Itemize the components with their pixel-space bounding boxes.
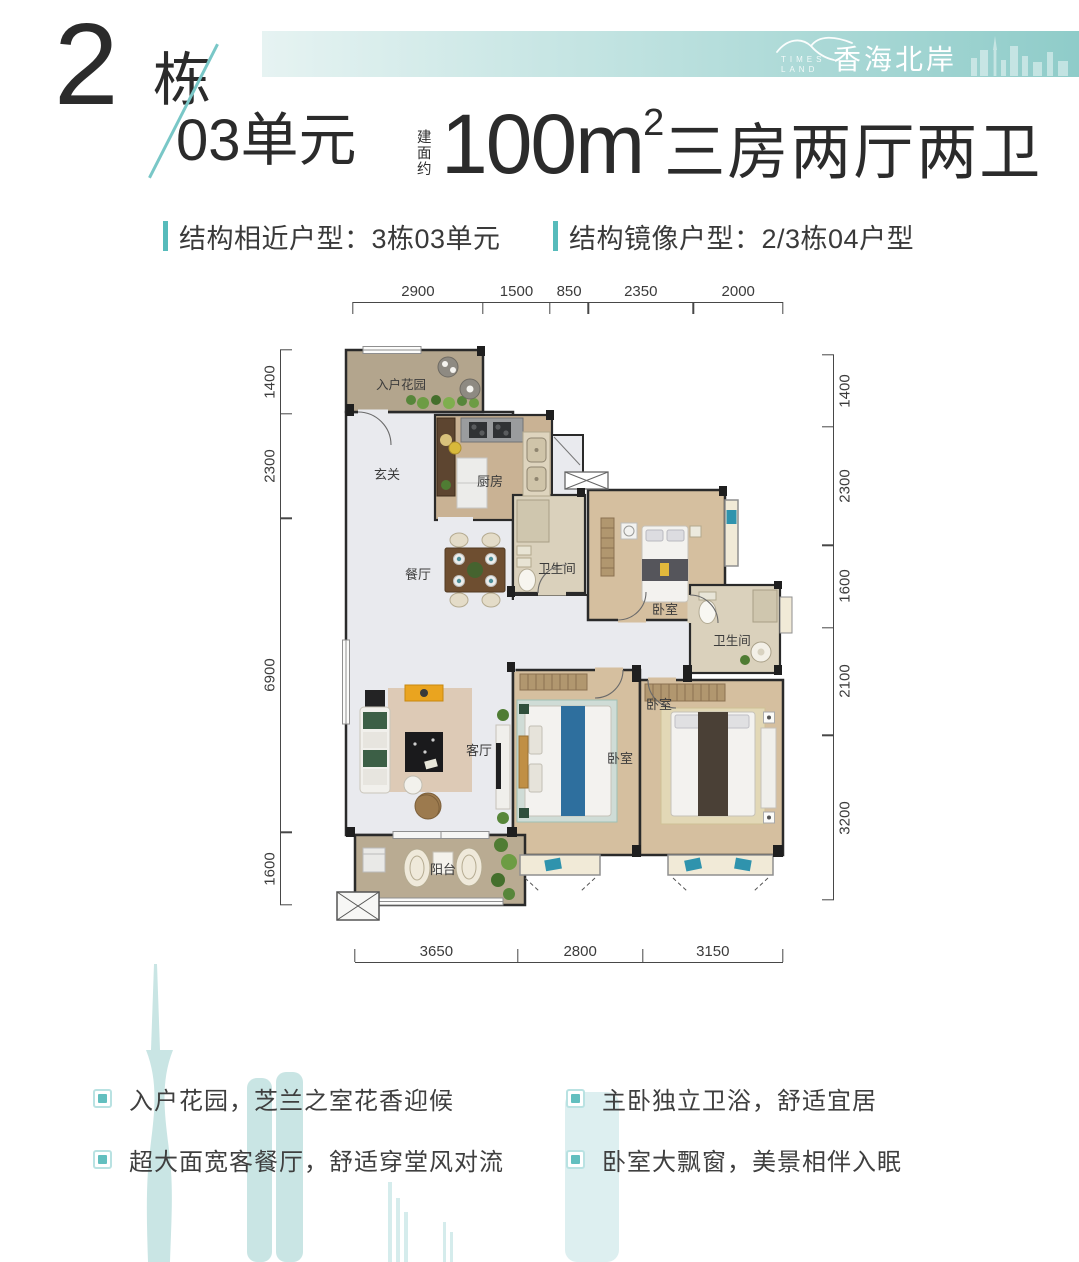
room-label-bedroom-top: 卧室 [652, 602, 678, 617]
dim-tick [782, 949, 783, 962]
headline: 100m2三房两厅两卫 [441, 96, 1042, 193]
dim-label: 2100 [837, 665, 854, 698]
banner-skyline-icon [965, 34, 1075, 76]
bed-icon [671, 712, 755, 816]
room-label-bedroom-master: 卧室 [646, 697, 672, 712]
dim-label: 1600 [262, 852, 279, 885]
window-opening-dashes [525, 878, 768, 891]
skyline-bars [388, 1182, 453, 1262]
dim-tick [822, 627, 834, 628]
building-unit-char: 栋 [153, 52, 211, 110]
room-label-balcony: 阳台 [430, 862, 456, 877]
dim-tick [642, 949, 643, 962]
room-label-dining: 餐厅 [405, 567, 431, 582]
dim-tick [822, 735, 834, 736]
unit-number: 03单元 [176, 112, 357, 170]
feature-text: 超大面宽客餐厅，舒适穿堂风对流 [129, 1142, 504, 1177]
dim-tick [517, 949, 518, 962]
floorplan-flyer: 2 栋 TIMES LAND 香海北岸 [0, 0, 1079, 1262]
mirror-layout-text: 结构镜像户型：2/3栋04户型 [569, 217, 914, 256]
dim-label: 3200 [837, 801, 854, 834]
room-label-foyer: 玄关 [374, 467, 400, 482]
brand-en-line2: LAND [781, 66, 818, 74]
dim-tick [822, 354, 834, 355]
room-label-kitchen: 厨房 [477, 474, 503, 489]
dim-strip-left: 1400230069001600 [262, 350, 281, 905]
feature-text: 主卧独立卫浴，舒适宜居 [602, 1081, 877, 1116]
dim-tick [280, 518, 292, 519]
dim-label: 850 [557, 283, 582, 300]
dim-tick [822, 426, 834, 427]
room-label-living: 客厅 [466, 743, 492, 758]
dim-tick [354, 949, 355, 962]
dim-tick [352, 302, 353, 314]
dim-label: 1400 [262, 365, 279, 398]
bed-icon [642, 526, 688, 602]
floor-plan: 入户花园 玄关 厨房 餐厅 卫生间 卧室 卫生间 卧室 卧室 客厅 阳台 [333, 340, 803, 940]
room-label-bedroom2: 卧室 [607, 751, 633, 766]
dim-label: 6900 [262, 659, 279, 692]
similar-layout-row: 结构相近户型：3栋03单元 [163, 219, 501, 253]
dim-label: 1500 [500, 283, 533, 300]
bay-window [668, 855, 773, 875]
dim-label: 2800 [563, 943, 596, 960]
dim-tick [549, 302, 550, 314]
accent-bar [553, 221, 558, 251]
elevator-icon [337, 892, 379, 920]
feature-text: 卧室大飘窗，美景相伴入眠 [602, 1142, 902, 1177]
similar-layout-text: 结构相近户型：3栋03单元 [179, 217, 501, 256]
accent-bar [163, 221, 168, 251]
feature-item: 超大面宽客餐厅，舒适穿堂风对流 [93, 1142, 504, 1177]
feature-item: 入户花园，芝兰之室花香迎候 [93, 1081, 454, 1116]
dim-tick [280, 349, 292, 350]
dim-tick [782, 302, 783, 314]
dim-label: 2300 [837, 469, 854, 502]
dim-tick [482, 302, 483, 314]
bullet-icon [566, 1089, 585, 1108]
area-value: 100m [441, 97, 643, 191]
bullet-icon [93, 1089, 112, 1108]
dim-label: 1400 [837, 374, 854, 407]
bay-window [725, 500, 738, 566]
room-label-entry-garden: 入户花园 [376, 377, 426, 392]
dim-tick [822, 899, 834, 900]
feature-text: 入户花园，芝兰之室花香迎候 [129, 1081, 454, 1116]
feature-item: 卧室大飘窗，美景相伴入眠 [566, 1142, 902, 1177]
room-label-bath1: 卫生间 [538, 562, 576, 576]
coffee-table-icon [405, 732, 443, 772]
dim-label: 2350 [624, 283, 657, 300]
dim-tick [280, 904, 292, 905]
area-superscript: 2 [643, 102, 664, 144]
dim-strip-right: 14002300160021003200 [833, 355, 852, 900]
sofa-icon [360, 707, 390, 793]
dim-strip-bottom: 365028003150 [355, 944, 783, 963]
dim-label: 2300 [262, 449, 279, 482]
bullet-icon [566, 1150, 585, 1169]
area-prefix: 建面约 [417, 130, 434, 178]
headline-rooms: 三房两厅两卫 [664, 118, 1042, 186]
tower-silhouette [565, 1092, 619, 1262]
brand-banner: TIMES LAND 香海北岸 [262, 31, 1079, 77]
dim-label: 2900 [401, 283, 434, 300]
brand-en-line1: TIMES [781, 56, 825, 64]
dim-label: 3650 [420, 943, 453, 960]
brand-name: 香海北岸 [833, 38, 957, 78]
bullet-icon [93, 1150, 112, 1169]
building-number: 2 [54, 6, 119, 122]
mirror-layout-row: 结构镜像户型：2/3栋04户型 [553, 219, 914, 253]
dim-tick [587, 302, 588, 314]
bay-window [780, 597, 792, 633]
dim-label: 3150 [696, 943, 729, 960]
dim-tick [280, 832, 292, 833]
dim-strip-top: 2900150085023502000 [353, 284, 783, 303]
dim-tick [822, 545, 834, 546]
room-label-bath-master: 卫生间 [713, 634, 751, 648]
ac-platform-icon [565, 472, 608, 489]
bed-icon [519, 706, 611, 816]
dim-tick [693, 302, 694, 314]
feature-item: 主卧独立卫浴，舒适宜居 [566, 1081, 877, 1116]
dim-tick [280, 413, 292, 414]
shoe-cabinet-icon [437, 418, 455, 496]
dim-label: 1600 [837, 570, 854, 603]
dim-label: 2000 [722, 283, 755, 300]
